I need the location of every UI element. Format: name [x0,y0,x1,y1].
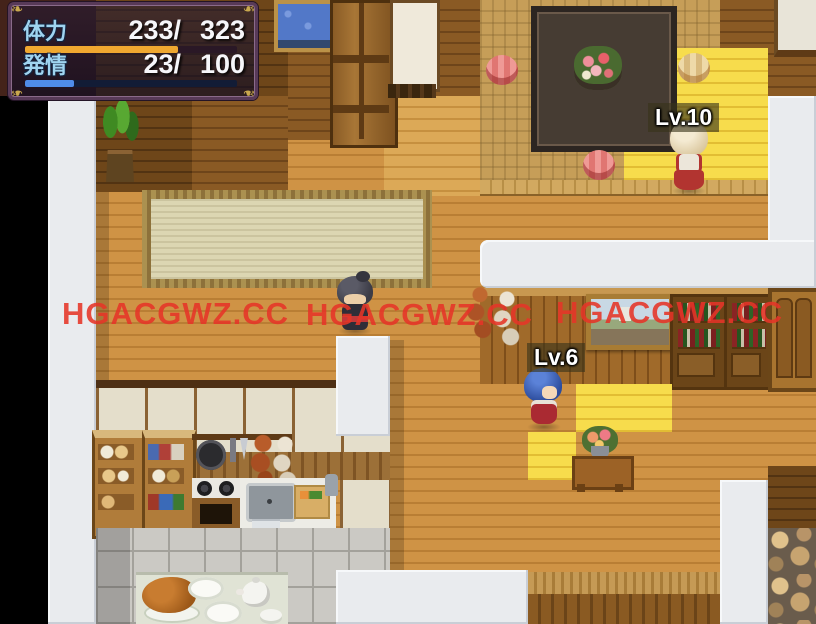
stove[interactable] [192,478,240,528]
pantry-shelf-left[interactable] [92,430,146,539]
watermark-text: HGACGWZ.CC [62,296,289,332]
level-badge-npc-blonde: Lv.10 [648,103,719,132]
oven-opening [200,504,232,524]
bottom-wall-planks [528,594,720,624]
hud-corner-ornament: ❧ [241,85,257,99]
tatami-edge-trim [480,180,768,196]
void-outside [0,96,48,624]
hud-corner-ornament: ❧ [9,85,25,99]
cushion-pink-left[interactable] [486,55,518,85]
cobblestone-path [768,528,816,624]
white-wall-block-a [336,336,390,436]
shoji-window-right [774,0,816,57]
white-wall-arm-right [768,96,816,248]
lit-floor-column [720,48,768,180]
teapot-spout [236,589,244,595]
book-row [732,329,766,347]
arousal-max: 100 [181,49,245,80]
status-hud-window: ❧ ❧ ❧ ❧ 体力 233/ 323 発情 23/ 100 [8,2,258,100]
wall-above-lit-column [720,0,768,48]
hanging-pan [196,440,226,470]
white-wall-band [480,240,816,288]
flower-centerpiece [574,46,622,90]
watermark-text: HGACGWZ.CC [306,297,533,333]
npc-blue[interactable] [522,366,566,432]
exterior-wall-planks [768,466,816,528]
npc-blonde-skirt [674,170,704,190]
wood-pillar-door[interactable] [330,0,398,148]
bottom-wall-trim [528,572,720,594]
plate [204,601,242,624]
wall-shadow-mid [390,340,404,570]
arousal-row: 発情 23/ 100 [23,49,245,79]
white-wall-bottom-band [336,570,528,624]
shelf-cabinet [677,353,715,377]
stairs-mid [192,96,288,192]
hp-max: 323 [181,15,245,46]
dining-table[interactable] [136,572,288,624]
arousal-gauge-track [25,80,237,87]
table-leg [615,484,623,492]
hanging-ladle [230,438,236,462]
shelf-goods [98,444,134,460]
rug [142,190,432,288]
lit-floor-lower-a [576,384,672,432]
bottom-wall-face [528,572,720,624]
arousal-label: 発情 [23,48,67,80]
teapot-lid [252,577,260,583]
hp-label: 体力 [23,14,67,46]
flower-side-table[interactable] [572,426,628,492]
shelf-goods [98,494,134,510]
wood-steps [384,96,480,196]
door-panel [795,298,812,378]
shelf-goods [148,494,184,510]
plate [188,577,224,600]
vegetables [300,491,322,499]
level-badge-npc-blue: Lv.6 [527,343,585,372]
jug [325,474,338,496]
arousal-gauge-fill [25,80,74,87]
npc-blue-body [531,400,557,424]
arousal-current: 23/ [109,49,181,80]
plant-leaves [96,96,144,154]
kitchen-wall-right-col [340,480,390,528]
watermark-text: HGACGWZ.CC [556,295,783,331]
shelf-goods [148,468,184,484]
stove-burner [219,481,234,496]
stove-burner [197,481,212,496]
tile-floor-dark-column [96,528,130,624]
white-wall-left [48,96,96,624]
table-leg [577,484,585,492]
book-row [678,329,720,347]
teacup [260,609,282,621]
hp-current: 233/ [109,15,181,46]
window-railing [388,84,436,98]
npc-blue-face [542,386,557,399]
player-hair-bun [356,271,370,282]
shelf-cabinet [731,353,761,377]
white-wall-arm-bottom-right [720,480,768,624]
shelf-goods [148,444,184,460]
potted-plant [92,96,148,180]
plant-pot [106,150,134,182]
cushion-pink-bottom[interactable] [583,150,615,180]
hp-row: 体力 233/ 323 [23,15,245,45]
shelf-goods [98,468,134,484]
sink[interactable] [246,483,296,522]
cushion-tan-right[interactable] [678,53,710,83]
teapot [242,581,270,607]
lit-floor-lower-b [528,432,576,480]
drain [267,499,272,504]
pillar-groove [359,3,364,139]
roast-chicken [142,577,196,613]
shoji-window [390,0,440,92]
pantry-shelf-right[interactable] [142,430,196,539]
rug-center [151,199,423,279]
game-screen: Lv.10 Lv.6 HGACGWZ.CC HGACGWZ.CC HGACGWZ… [0,0,816,624]
